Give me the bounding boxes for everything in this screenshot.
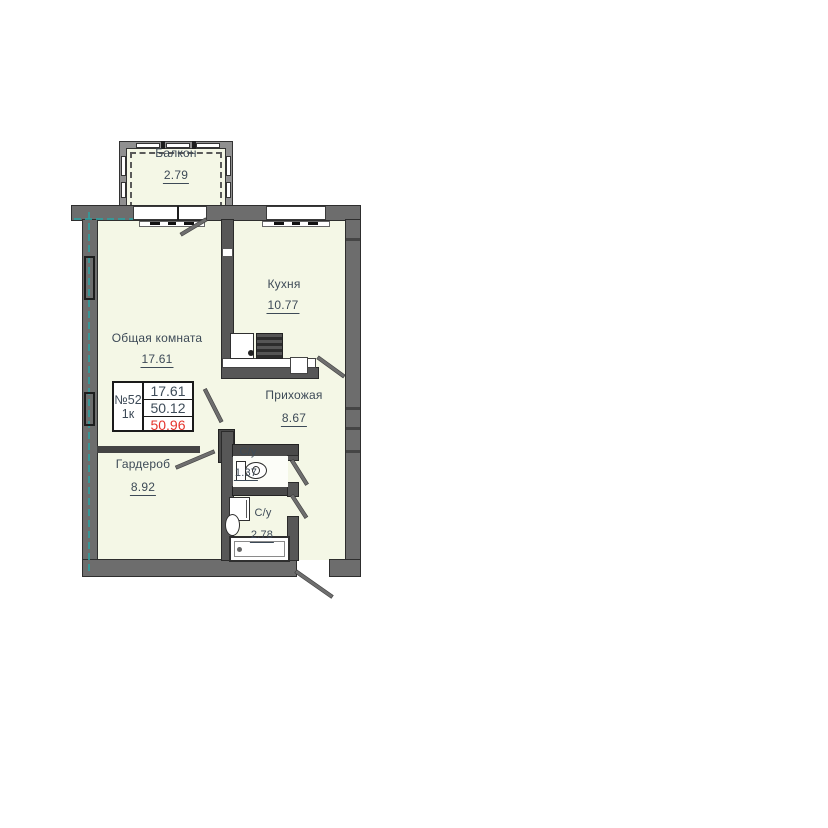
unit-id-cell: №52 1к bbox=[114, 383, 144, 430]
balcony-window-segment bbox=[196, 143, 220, 148]
sill-mark bbox=[150, 222, 160, 225]
wardrobe-area: 8.92 bbox=[130, 480, 156, 494]
floorplan-canvas: Балкон 2.79 Общая комната 17.61 Кухня 10… bbox=[0, 0, 828, 828]
wall-living-wardrobe bbox=[97, 446, 200, 453]
kitchen-vent-box bbox=[290, 357, 308, 374]
wc-large-label: С/у bbox=[254, 506, 271, 520]
sill-mark bbox=[292, 222, 300, 225]
sill-mark bbox=[308, 222, 318, 225]
balcony-window-segment bbox=[121, 156, 126, 176]
kitchen-faucet-icon bbox=[248, 350, 254, 356]
hallway-area: 8.67 bbox=[281, 411, 307, 425]
wall-joint bbox=[84, 256, 95, 300]
unit-middle-area: 50.12 bbox=[144, 400, 192, 417]
outer-wall-bottom-right bbox=[330, 560, 360, 576]
wall-joint bbox=[84, 392, 95, 426]
kitchen-area: 10.77 bbox=[266, 298, 299, 312]
wc-small-area: 1.37 bbox=[234, 466, 258, 480]
unit-number: №52 bbox=[114, 393, 141, 407]
wardrobe-label: Гардероб bbox=[116, 457, 170, 471]
unit-living-area: 17.61 bbox=[144, 383, 192, 400]
window-mullion bbox=[177, 206, 179, 220]
wall-gap bbox=[223, 249, 232, 256]
entrance-door-swing bbox=[295, 570, 333, 598]
wall-tick bbox=[346, 450, 360, 453]
living-balcony-window bbox=[133, 206, 207, 220]
sill-mark bbox=[168, 222, 176, 225]
unit-areas-cell: 17.61 50.12 50.96 bbox=[144, 383, 192, 430]
unit-info-table: №52 1к 17.61 50.12 50.96 bbox=[112, 381, 194, 432]
living-label: Общая комната bbox=[112, 331, 203, 345]
outer-wall-right bbox=[346, 220, 360, 560]
living-area: 17.61 bbox=[140, 352, 173, 366]
unit-total-area: 50.96 bbox=[144, 417, 192, 433]
bathtub-drain-icon bbox=[237, 547, 242, 552]
balcony-window-segment bbox=[226, 156, 231, 176]
wall-wc-divider bbox=[233, 487, 288, 495]
unit-type: 1к bbox=[122, 407, 134, 421]
wall-tick bbox=[346, 238, 360, 241]
balcony-label: Балкон bbox=[155, 146, 196, 160]
balcony-area: 2.79 bbox=[163, 168, 189, 182]
wc-large-area: 2.78 bbox=[250, 528, 274, 542]
balcony-window-segment bbox=[121, 182, 126, 198]
balcony-window-segment bbox=[226, 182, 231, 198]
kitchen-label: Кухня bbox=[267, 277, 300, 291]
kitchen-window bbox=[266, 206, 326, 220]
stove-icon bbox=[256, 333, 283, 359]
wash-basin-icon bbox=[225, 514, 240, 536]
wc-small-label: С/у bbox=[239, 445, 256, 459]
wall-tick bbox=[346, 407, 360, 410]
hallway-label: Прихожая bbox=[265, 388, 322, 402]
outer-wall-bottom-left bbox=[83, 560, 296, 576]
sill-mark bbox=[274, 222, 284, 225]
washing-machine-detail bbox=[246, 500, 250, 518]
wall-tick bbox=[346, 427, 360, 430]
